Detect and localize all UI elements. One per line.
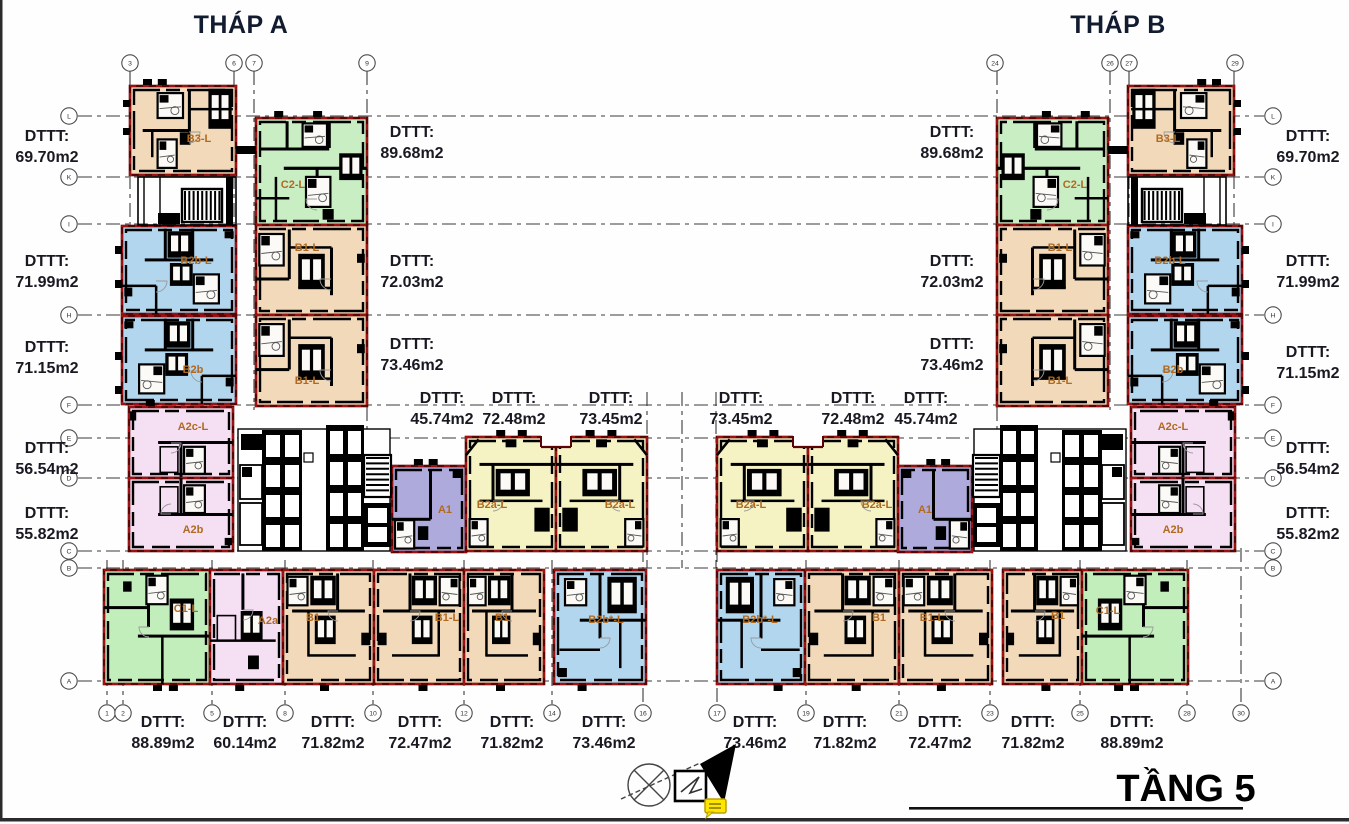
- svg-text:DTTT:: DTTT:: [390, 124, 434, 141]
- svg-text:60.14m2: 60.14m2: [213, 735, 276, 752]
- svg-text:B2a-L: B2a-L: [477, 499, 508, 511]
- svg-text:F: F: [1271, 402, 1275, 409]
- svg-text:A2b: A2b: [183, 524, 204, 536]
- svg-text:C: C: [1271, 548, 1276, 555]
- svg-text:B1: B1: [872, 612, 886, 624]
- svg-text:DTTT:: DTTT:: [1011, 714, 1055, 731]
- svg-text:K: K: [1271, 174, 1276, 181]
- svg-text:B2b-L: B2b-L: [180, 255, 211, 267]
- svg-text:B2b*-L: B2b*-L: [588, 614, 624, 626]
- svg-text:DTTT:: DTTT:: [1110, 714, 1154, 731]
- svg-text:C1-L: C1-L: [174, 603, 199, 615]
- svg-text:23: 23: [986, 710, 994, 717]
- svg-text:C: C: [67, 548, 72, 555]
- svg-text:21: 21: [895, 710, 903, 717]
- svg-text:B1-L: B1-L: [920, 612, 945, 624]
- svg-text:72.47m2: 72.47m2: [908, 735, 971, 752]
- svg-text:72.48m2: 72.48m2: [821, 411, 884, 428]
- svg-text:73.46m2: 73.46m2: [380, 357, 443, 374]
- svg-text:B3-L: B3-L: [187, 133, 212, 145]
- svg-text:A1: A1: [438, 504, 452, 516]
- svg-text:B: B: [1271, 565, 1276, 572]
- svg-text:DTTT:: DTTT:: [582, 714, 626, 731]
- svg-text:B1-L: B1-L: [435, 612, 460, 624]
- svg-text:16: 16: [639, 710, 647, 717]
- svg-text:DTTT:: DTTT:: [398, 714, 442, 731]
- svg-text:H: H: [67, 312, 72, 319]
- svg-text:E: E: [1271, 435, 1276, 442]
- svg-text:TẦNG 5: TẦNG 5: [1116, 766, 1255, 810]
- svg-text:73.45m2: 73.45m2: [709, 411, 772, 428]
- svg-text:DTTT:: DTTT:: [831, 390, 875, 407]
- svg-text:B1: B1: [1051, 610, 1065, 622]
- svg-text:A: A: [1271, 678, 1276, 685]
- svg-text:DTTT:: DTTT:: [930, 336, 974, 353]
- svg-text:L: L: [67, 113, 71, 120]
- svg-text:71.82m2: 71.82m2: [1001, 735, 1064, 752]
- svg-text:DTTT:: DTTT:: [223, 714, 267, 731]
- svg-text:27: 27: [1125, 60, 1133, 67]
- svg-text:B2a-L: B2a-L: [736, 499, 767, 511]
- svg-text:72.03m2: 72.03m2: [380, 274, 443, 291]
- svg-text:88.89m2: 88.89m2: [1100, 735, 1163, 752]
- svg-text:DTTT:: DTTT:: [719, 390, 763, 407]
- svg-text:DTTT:: DTTT:: [1286, 344, 1330, 361]
- svg-text:A2b: A2b: [1163, 524, 1184, 536]
- svg-text:B2b: B2b: [1163, 364, 1184, 376]
- svg-text:DTTT:: DTTT:: [930, 253, 974, 270]
- svg-text:DTTT:: DTTT:: [311, 714, 355, 731]
- svg-text:I: I: [68, 221, 70, 228]
- svg-text:DTTT:: DTTT:: [733, 714, 777, 731]
- svg-text:DTTT:: DTTT:: [25, 128, 69, 145]
- svg-text:71.99m2: 71.99m2: [1276, 274, 1339, 291]
- svg-text:71.15m2: 71.15m2: [1276, 365, 1339, 382]
- svg-text:DTTT:: DTTT:: [1286, 440, 1330, 457]
- svg-text:1: 1: [105, 710, 109, 717]
- svg-text:B1-L: B1-L: [1048, 375, 1073, 387]
- svg-text:26: 26: [1106, 60, 1114, 67]
- svg-text:B2a-L: B2a-L: [605, 499, 636, 511]
- svg-text:H: H: [1271, 312, 1276, 319]
- svg-text:A1: A1: [918, 504, 932, 516]
- svg-text:DTTT:: DTTT:: [25, 253, 69, 270]
- svg-text:B2a-L: B2a-L: [862, 499, 893, 511]
- svg-text:73.45m2: 73.45m2: [579, 411, 642, 428]
- svg-text:24: 24: [991, 60, 999, 67]
- svg-text:2: 2: [121, 710, 125, 717]
- svg-text:88.89m2: 88.89m2: [131, 735, 194, 752]
- svg-text:25: 25: [1076, 710, 1084, 717]
- svg-text:DTTT:: DTTT:: [930, 124, 974, 141]
- svg-text:DTTT:: DTTT:: [1286, 253, 1330, 270]
- svg-text:8: 8: [283, 710, 287, 717]
- svg-text:55.82m2: 55.82m2: [15, 526, 78, 543]
- svg-text:72.47m2: 72.47m2: [388, 735, 451, 752]
- svg-text:DTTT:: DTTT:: [390, 336, 434, 353]
- svg-text:89.68m2: 89.68m2: [380, 145, 443, 162]
- svg-text:9: 9: [365, 60, 369, 67]
- svg-text:10: 10: [369, 710, 377, 717]
- svg-text:DTTT:: DTTT:: [589, 390, 633, 407]
- svg-text:A2c-L: A2c-L: [178, 421, 209, 433]
- svg-text:DTTT:: DTTT:: [492, 390, 536, 407]
- svg-text:I: I: [1272, 221, 1274, 228]
- svg-text:12: 12: [460, 710, 468, 717]
- svg-text:73.46m2: 73.46m2: [920, 357, 983, 374]
- svg-text:69.70m2: 69.70m2: [1276, 149, 1339, 166]
- svg-text:71.99m2: 71.99m2: [15, 274, 78, 291]
- svg-text:DTTT:: DTTT:: [823, 714, 867, 731]
- svg-text:17: 17: [713, 710, 721, 717]
- svg-text:71.82m2: 71.82m2: [480, 735, 543, 752]
- svg-text:5: 5: [210, 710, 214, 717]
- svg-text:14: 14: [548, 710, 556, 717]
- svg-text:DTTT:: DTTT:: [1286, 505, 1330, 522]
- svg-text:B: B: [67, 565, 72, 572]
- svg-text:71.82m2: 71.82m2: [301, 735, 364, 752]
- svg-text:29: 29: [1231, 60, 1239, 67]
- svg-text:28: 28: [1183, 710, 1191, 717]
- svg-text:THÁP A: THÁP A: [194, 10, 289, 39]
- svg-text:DTTT:: DTTT:: [25, 339, 69, 356]
- svg-text:71.15m2: 71.15m2: [15, 360, 78, 377]
- svg-text:B2b*-L: B2b*-L: [742, 614, 778, 626]
- svg-text:19: 19: [802, 710, 810, 717]
- svg-text:B2b: B2b: [183, 364, 204, 376]
- svg-text:B1-L: B1-L: [1048, 242, 1073, 254]
- svg-text:72.03m2: 72.03m2: [920, 274, 983, 291]
- svg-text:B1-L: B1-L: [295, 242, 320, 254]
- svg-text:7: 7: [252, 60, 256, 67]
- svg-text:56.54m2: 56.54m2: [15, 461, 78, 478]
- svg-text:55.82m2: 55.82m2: [1276, 526, 1339, 543]
- svg-text:C2-L: C2-L: [1063, 179, 1088, 191]
- svg-text:DTTT:: DTTT:: [390, 253, 434, 270]
- svg-text:DTTT:: DTTT:: [490, 714, 534, 731]
- svg-text:L: L: [1271, 113, 1275, 120]
- svg-text:30: 30: [1237, 710, 1245, 717]
- svg-text:F: F: [67, 402, 71, 409]
- svg-text:B1: B1: [306, 612, 320, 624]
- svg-text:DTTT:: DTTT:: [1286, 128, 1330, 145]
- svg-text:DTTT:: DTTT:: [25, 505, 69, 522]
- svg-text:56.54m2: 56.54m2: [1276, 461, 1339, 478]
- svg-text:DTTT:: DTTT:: [25, 440, 69, 457]
- svg-text:D: D: [1271, 475, 1276, 482]
- svg-text:6: 6: [232, 60, 236, 67]
- svg-text:45.74m2: 45.74m2: [410, 411, 473, 428]
- svg-text:B1: B1: [495, 612, 509, 624]
- svg-text:DTTT:: DTTT:: [141, 714, 185, 731]
- svg-text:72.48m2: 72.48m2: [482, 411, 545, 428]
- svg-text:69.70m2: 69.70m2: [15, 149, 78, 166]
- svg-text:A2a: A2a: [258, 615, 279, 627]
- svg-text:K: K: [67, 174, 72, 181]
- svg-text:A2c-L: A2c-L: [1158, 421, 1189, 433]
- svg-text:45.74m2: 45.74m2: [894, 411, 957, 428]
- svg-text:89.68m2: 89.68m2: [920, 145, 983, 162]
- svg-text:B1-L: B1-L: [295, 375, 320, 387]
- svg-text:73.46m2: 73.46m2: [572, 735, 635, 752]
- svg-text:3: 3: [128, 60, 132, 67]
- svg-text:A: A: [67, 678, 72, 685]
- svg-text:71.82m2: 71.82m2: [813, 735, 876, 752]
- svg-text:B3-L: B3-L: [1156, 133, 1181, 145]
- svg-text:C1-L: C1-L: [1096, 605, 1121, 617]
- svg-text:DTTT:: DTTT:: [904, 390, 948, 407]
- svg-text:C2-L: C2-L: [281, 179, 306, 191]
- svg-text:DTTT:: DTTT:: [420, 390, 464, 407]
- svg-text:DTTT:: DTTT:: [918, 714, 962, 731]
- svg-text:THÁP B: THÁP B: [1070, 10, 1166, 39]
- svg-text:B2b-L: B2b-L: [1154, 255, 1185, 267]
